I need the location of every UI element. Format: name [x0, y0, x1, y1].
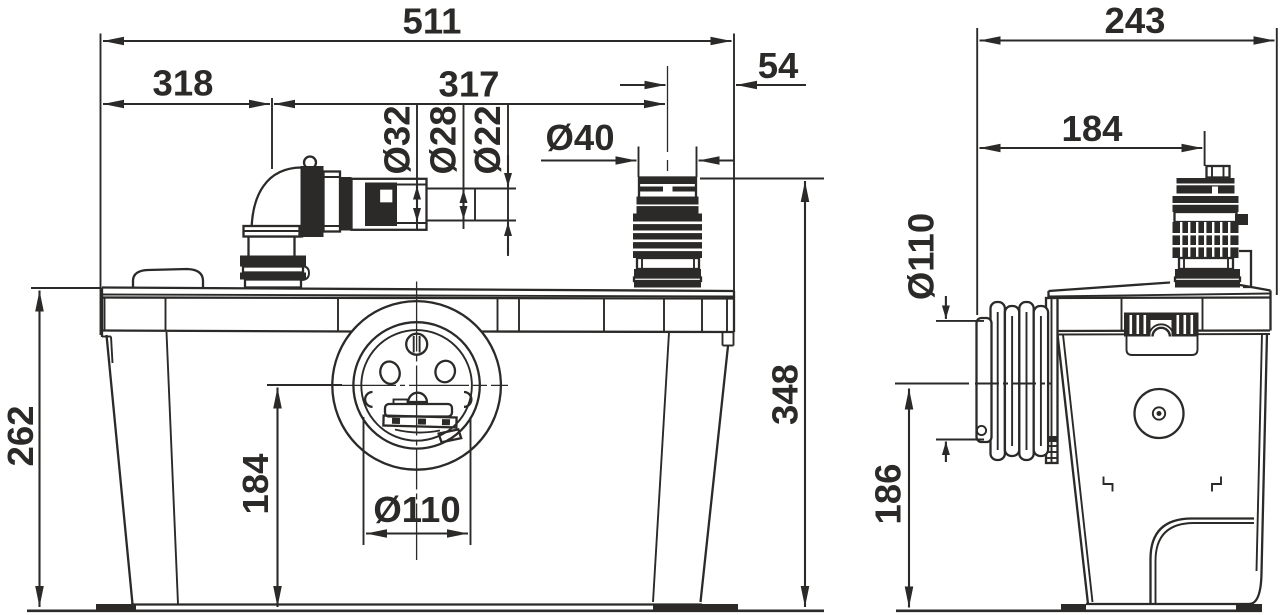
svg-text:Ø28: Ø28 [423, 106, 464, 175]
svg-text:317: 317 [439, 64, 500, 105]
svg-text:511: 511 [403, 1, 462, 42]
svg-text:243: 243 [1105, 0, 1166, 41]
svg-text:54: 54 [758, 45, 799, 86]
svg-text:348: 348 [765, 364, 806, 425]
svg-text:184: 184 [1062, 108, 1124, 149]
svg-text:262: 262 [0, 406, 41, 467]
svg-text:Ø22: Ø22 [467, 106, 508, 175]
svg-text:Ø110: Ø110 [373, 489, 460, 530]
svg-text:Ø40: Ø40 [546, 117, 615, 158]
svg-text:318: 318 [153, 63, 214, 104]
svg-text:186: 186 [868, 464, 909, 525]
svg-text:Ø110: Ø110 [901, 213, 942, 300]
svg-text:184: 184 [235, 453, 276, 515]
svg-text:Ø32: Ø32 [377, 106, 418, 175]
